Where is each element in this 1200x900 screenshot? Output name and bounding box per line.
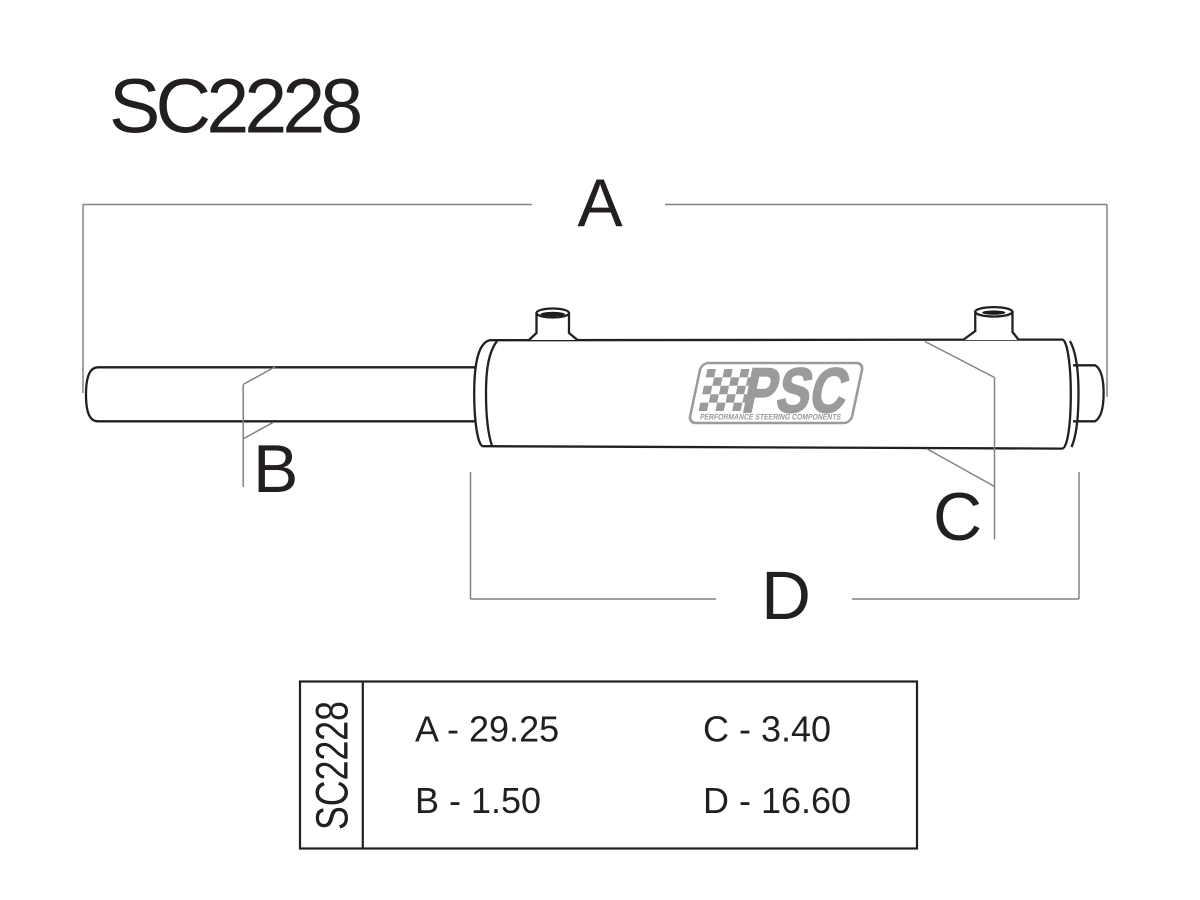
svg-text:B - 1.50: B - 1.50 — [415, 780, 541, 821]
svg-text:B: B — [253, 431, 298, 507]
svg-text:C: C — [933, 479, 982, 555]
svg-text:D: D — [761, 557, 811, 634]
svg-text:A - 29.25: A - 29.25 — [415, 709, 559, 750]
svg-text:PERFORMANCE STEERING COMPONENT: PERFORMANCE STEERING COMPONENTS — [699, 413, 842, 422]
svg-text:C - 3.40: C - 3.40 — [703, 709, 831, 750]
svg-text:D - 16.60: D - 16.60 — [703, 780, 851, 821]
svg-text:A: A — [577, 165, 623, 241]
svg-text:SC2228: SC2228 — [109, 64, 360, 150]
svg-text:SC2228: SC2228 — [307, 701, 358, 830]
